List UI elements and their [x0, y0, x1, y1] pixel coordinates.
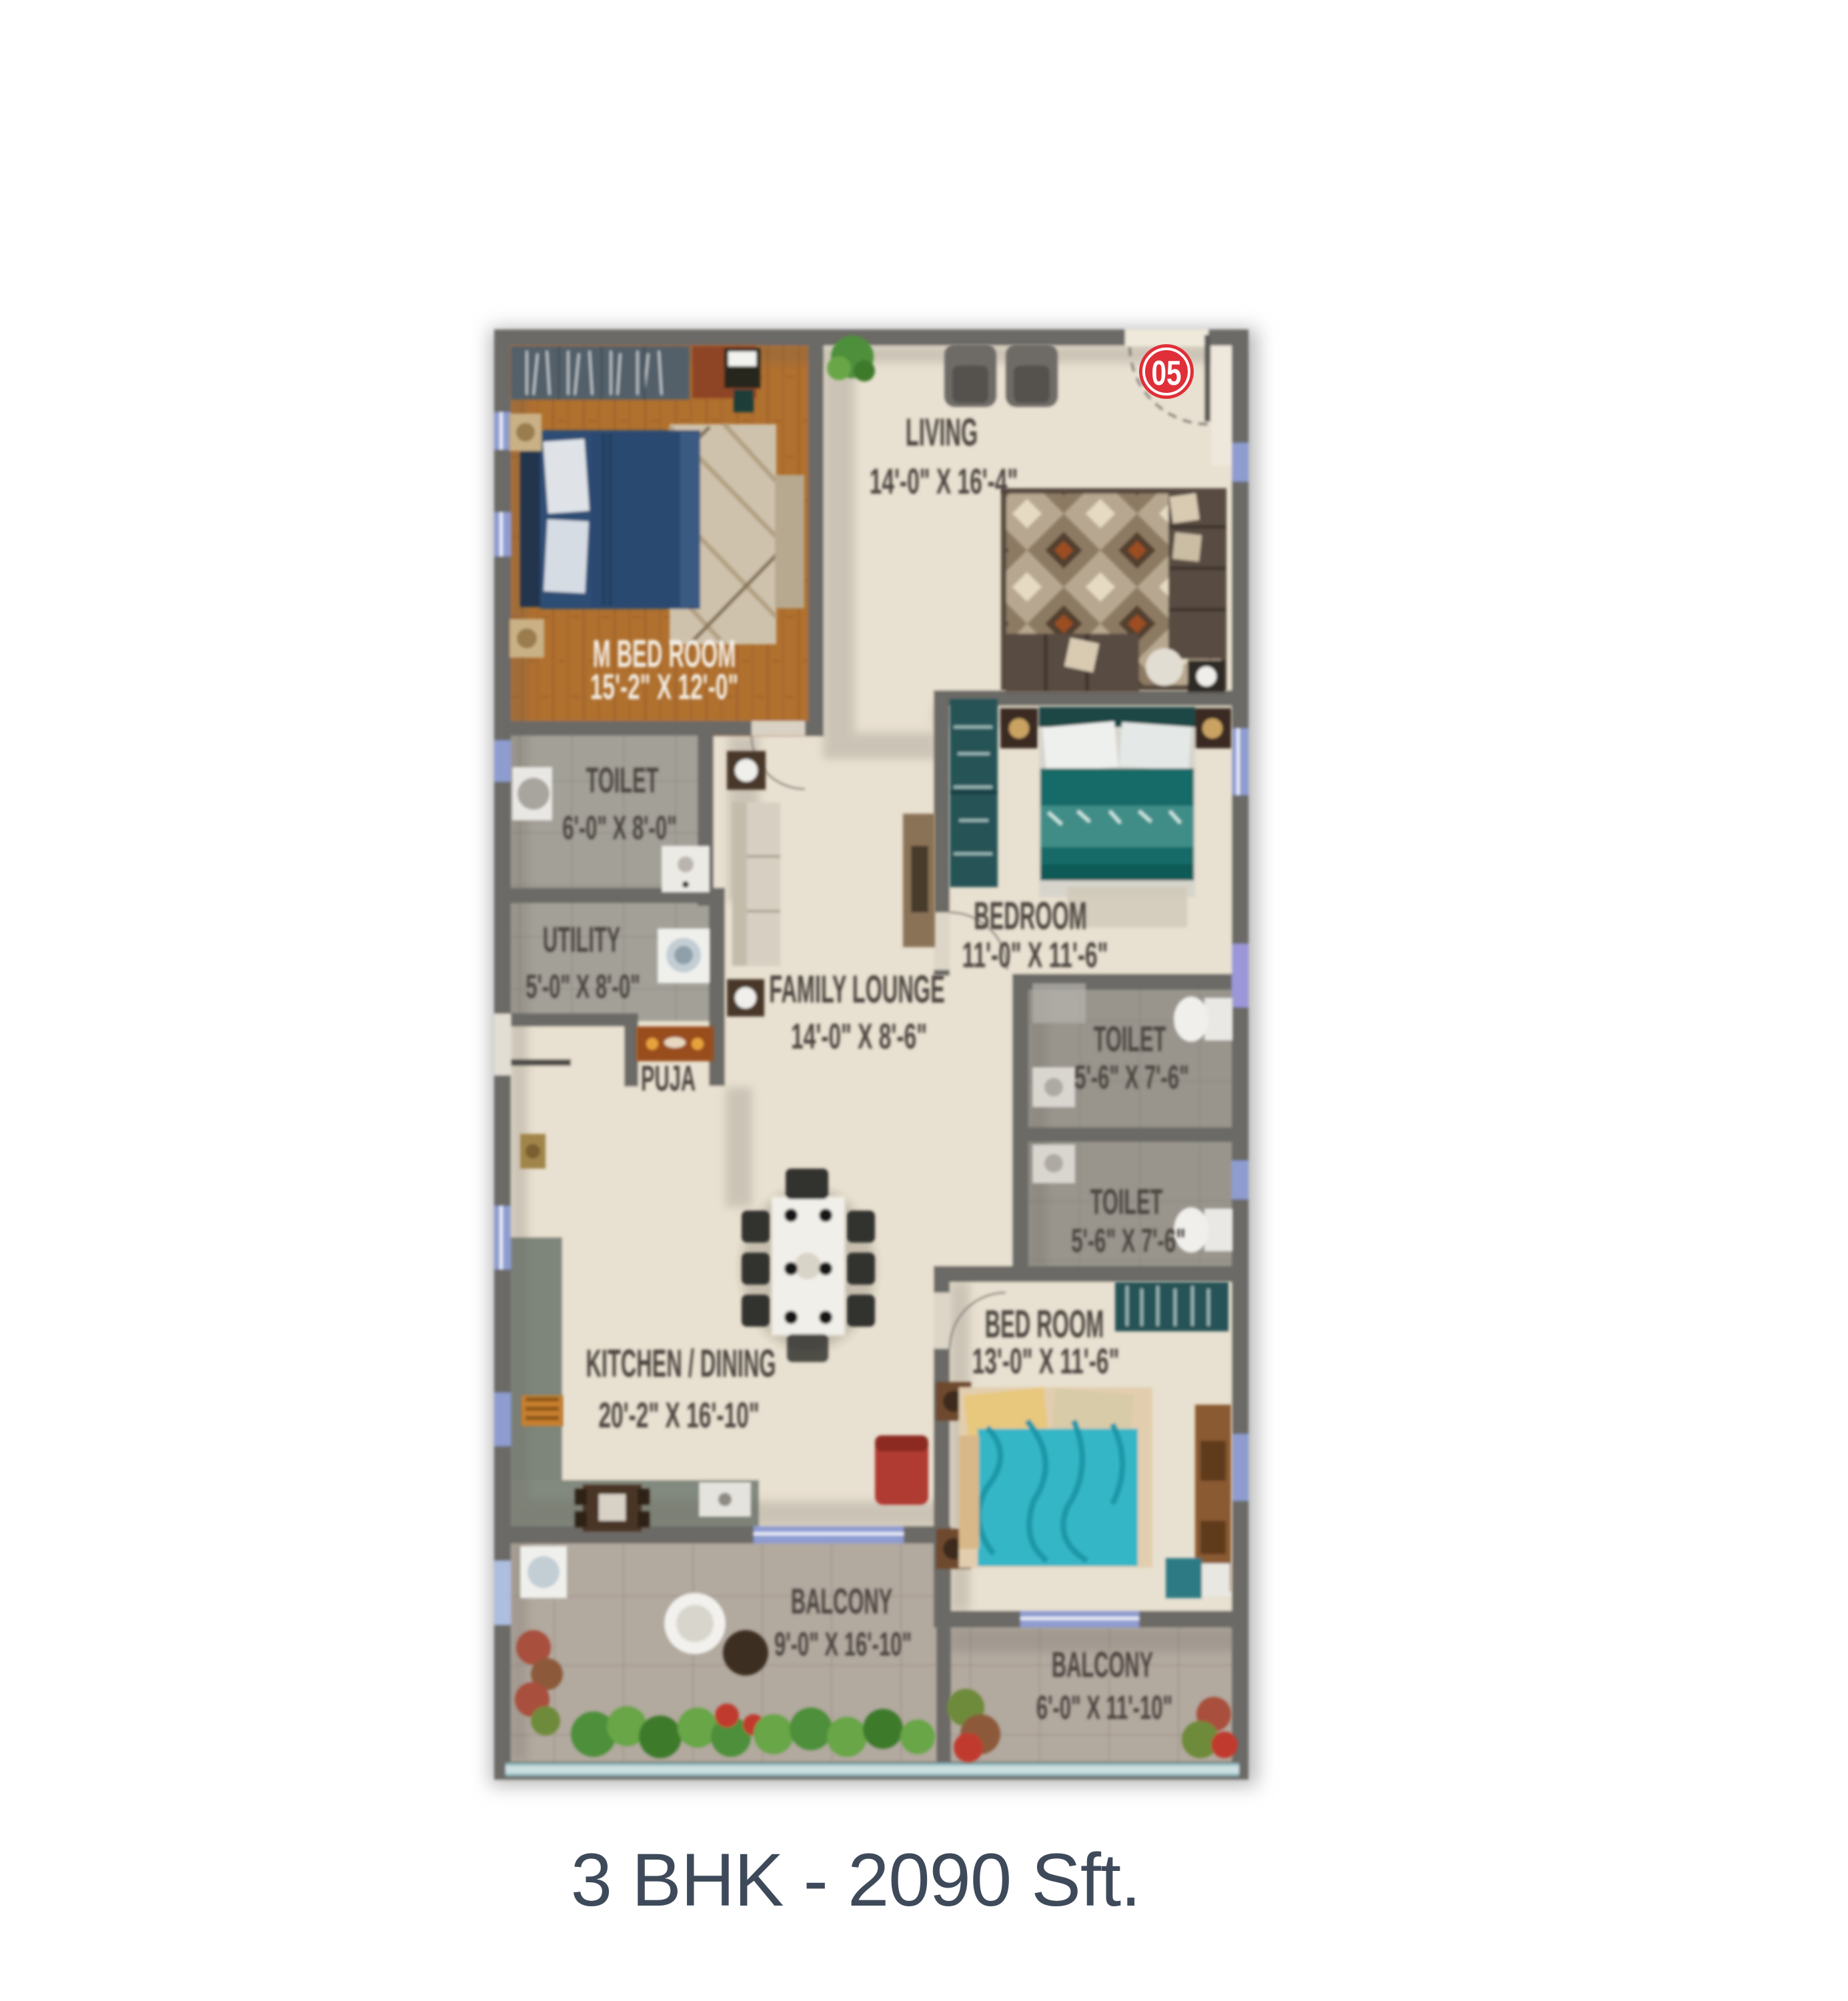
svg-text:6'-0" X 11'-10": 6'-0" X 11'-10" — [1036, 1688, 1172, 1726]
svg-text:9'-0" X 16'-10": 9'-0" X 16'-10" — [774, 1625, 912, 1662]
svg-text:5'-0" X 8'-0": 5'-0" X 8'-0" — [526, 967, 640, 1005]
svg-text:PUJA: PUJA — [641, 1059, 696, 1099]
svg-text:6'-0" X 8'-0": 6'-0" X 8'-0" — [562, 808, 677, 846]
svg-text:5'-6" X 7'-6": 5'-6" X 7'-6" — [1071, 1221, 1186, 1259]
svg-text:TOILET: TOILET — [1090, 1182, 1163, 1222]
svg-text:05: 05 — [1151, 354, 1181, 392]
svg-text:KITCHEN / DINING: KITCHEN / DINING — [586, 1341, 776, 1385]
svg-text:14'-0" X 16'-4": 14'-0" X 16'-4" — [870, 461, 1018, 502]
svg-text:BALCONY: BALCONY — [791, 1581, 892, 1621]
svg-text:BEDROOM: BEDROOM — [974, 894, 1087, 937]
svg-text:5'-6" X 7'-6": 5'-6" X 7'-6" — [1074, 1058, 1189, 1095]
svg-text:BED ROOM: BED ROOM — [985, 1302, 1104, 1345]
svg-text:TOILET: TOILET — [1094, 1019, 1166, 1059]
svg-text:11'-0" X 11'-6": 11'-0" X 11'-6" — [962, 934, 1108, 975]
svg-text:LIVING: LIVING — [906, 410, 978, 454]
svg-text:13'-0" X 11'-6": 13'-0" X 11'-6" — [972, 1341, 1120, 1381]
svg-text:15'-2" X 12'-0": 15'-2" X 12'-0" — [590, 666, 739, 707]
svg-text:BALCONY: BALCONY — [1052, 1645, 1153, 1685]
svg-text:TOILET: TOILET — [586, 760, 659, 800]
svg-text:3 BHK - 2090 Sft.: 3 BHK - 2090 Sft. — [571, 1838, 1141, 1922]
svg-text:UTILITY: UTILITY — [543, 920, 620, 960]
svg-text:FAMILY LOUNGE: FAMILY LOUNGE — [769, 967, 944, 1011]
svg-text:14'-0" X 8'-6": 14'-0" X 8'-6" — [791, 1016, 927, 1057]
svg-text:20'-2" X 16'-10": 20'-2" X 16'-10" — [598, 1395, 759, 1435]
